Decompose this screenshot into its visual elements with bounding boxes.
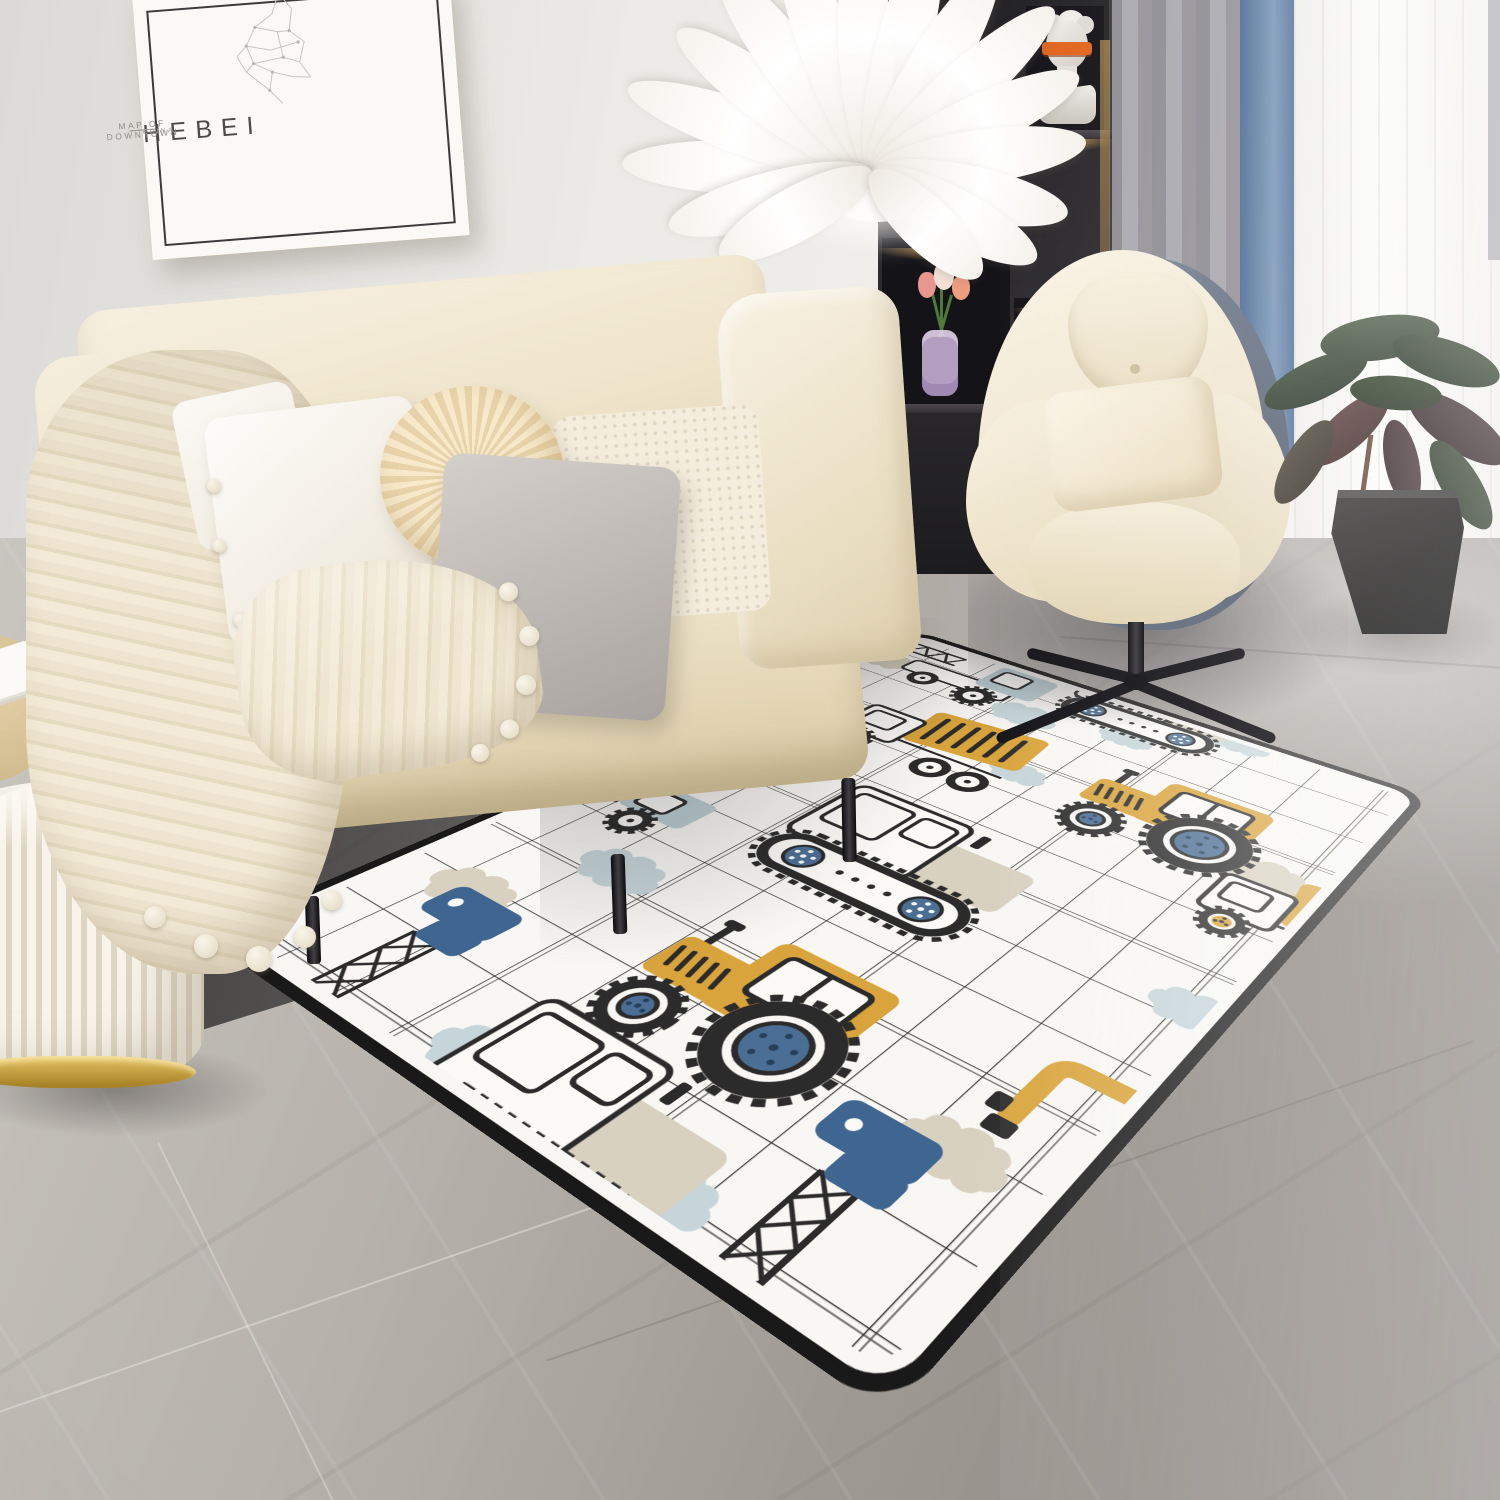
armchair-leg bbox=[1026, 647, 1137, 685]
armchair-leg bbox=[1135, 647, 1246, 685]
armchair bbox=[972, 250, 1302, 695]
map-graphic bbox=[182, 0, 391, 117]
armchair-hub bbox=[1124, 674, 1148, 690]
armchair-seat bbox=[1028, 502, 1240, 624]
headrest-button bbox=[1130, 364, 1140, 374]
tulip-vase bbox=[922, 330, 958, 396]
living-room-scene: HEBEI MAP OF DOWNTOWN CHINA bbox=[0, 0, 1500, 1500]
plant-pot bbox=[1330, 490, 1464, 634]
curtain-edge-sliver bbox=[1488, 0, 1500, 260]
pouf-gold-ring bbox=[0, 1056, 196, 1088]
wall-art-frame: HEBEI MAP OF DOWNTOWN CHINA bbox=[132, 0, 470, 260]
art-mat: HEBEI MAP OF DOWNTOWN CHINA bbox=[132, 0, 470, 260]
sofa-leg bbox=[611, 854, 628, 934]
bust-sunglasses bbox=[1042, 42, 1092, 55]
armchair-pillow bbox=[1041, 374, 1224, 514]
rubber-plant bbox=[1262, 318, 1500, 653]
sofa-leg bbox=[841, 778, 856, 862]
